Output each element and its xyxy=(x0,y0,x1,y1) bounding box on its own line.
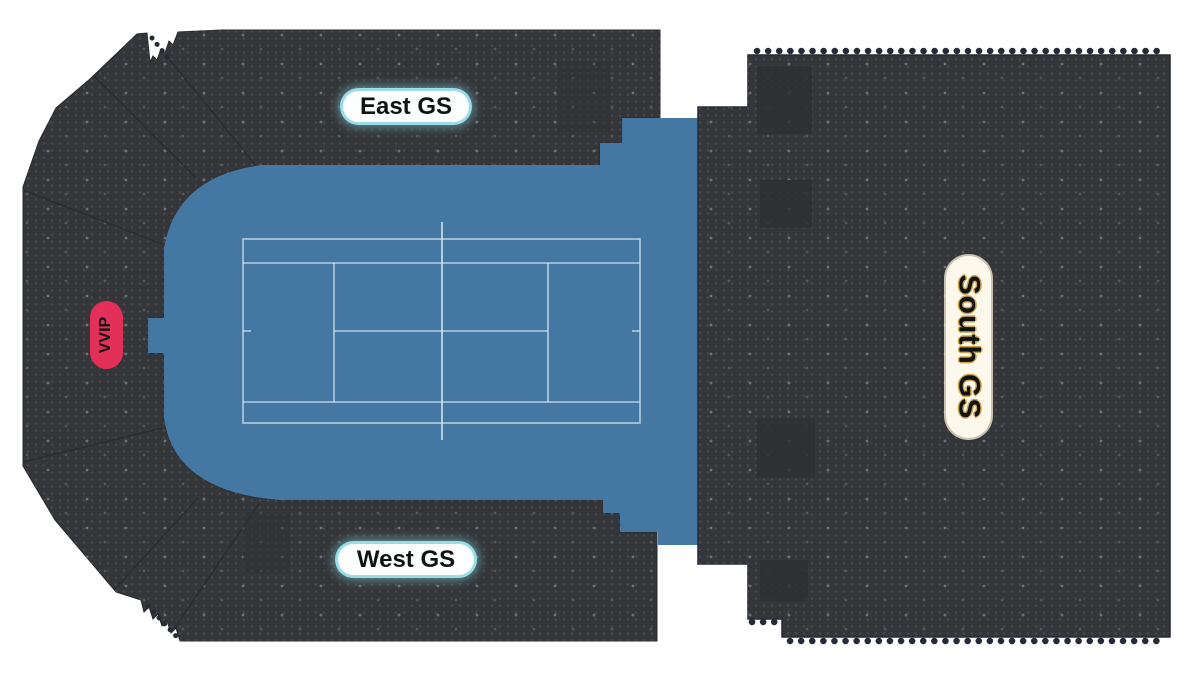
seat-dots-sparkle-south xyxy=(698,55,1170,637)
south-gs-label-text: South GS xyxy=(952,275,986,420)
venue-seat-map: East GS West GS VVIP South GS xyxy=(0,0,1200,679)
vvip-label-text: VVIP xyxy=(98,317,116,353)
section-label-south-gs[interactable]: South GS xyxy=(946,256,991,438)
south-gs-stand[interactable] xyxy=(698,51,1170,641)
section-label-west-gs[interactable]: West GS xyxy=(338,544,474,575)
court-area xyxy=(148,118,698,545)
east-gs-label-text: East GS xyxy=(360,93,452,121)
section-label-vvip[interactable]: VVIP xyxy=(90,301,123,369)
west-gs-label-text: West GS xyxy=(357,546,455,574)
venue-map-canvas xyxy=(0,0,1200,679)
section-label-east-gs[interactable]: East GS xyxy=(343,91,469,122)
